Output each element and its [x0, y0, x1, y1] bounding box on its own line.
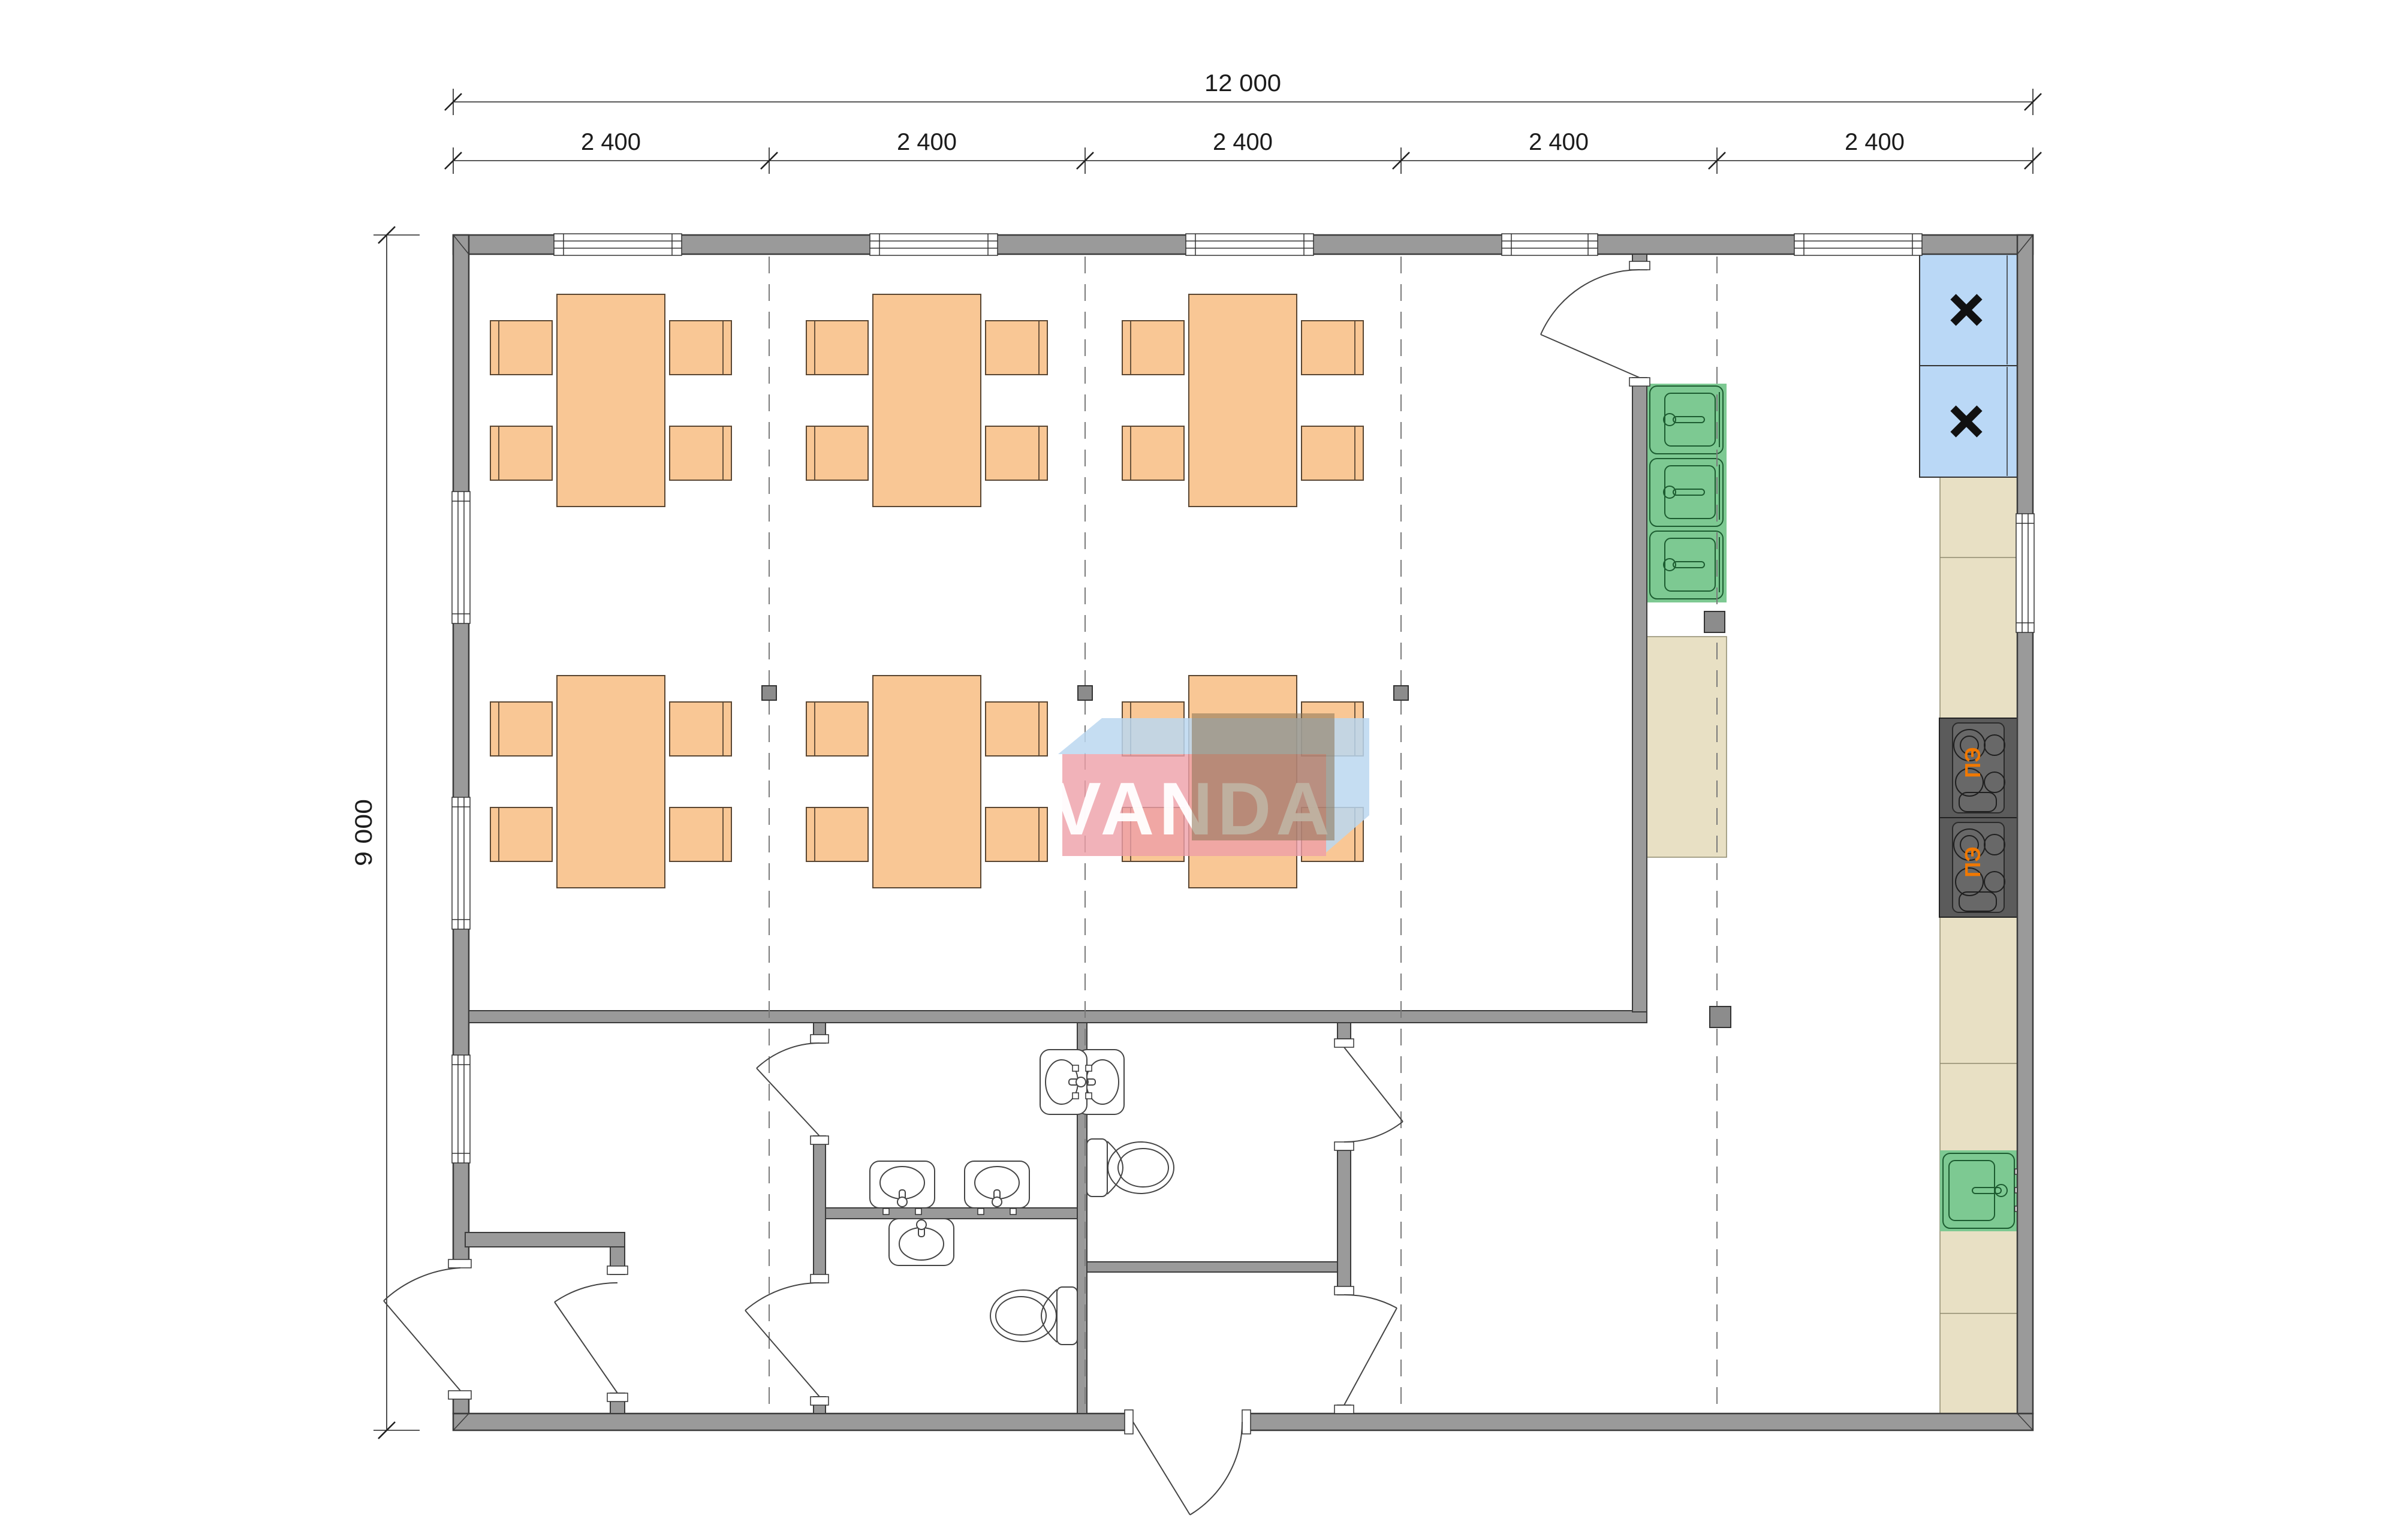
dimension-bay-5-label: 2 400	[1845, 129, 1905, 155]
wall-backroom-left	[1337, 1150, 1351, 1295]
dimension-bay-3-label: 2 400	[1213, 129, 1273, 155]
dimension-total-width-label: 12 000	[1204, 70, 1281, 97]
window-left-3	[452, 1055, 470, 1163]
stove-2-label: ПЭ	[1960, 846, 1985, 878]
window-right-1	[2016, 514, 2034, 632]
window-top-2	[870, 234, 998, 255]
kitchen-counters	[1647, 477, 2017, 1414]
watermark-shadow-box	[1192, 713, 1334, 840]
door-corridor-upper	[757, 1035, 829, 1144]
column-4	[1710, 1006, 1731, 1027]
kitchen-sink-block	[1640, 384, 1727, 602]
stoves: ПЭ ПЭ	[1939, 718, 2017, 917]
toilet-1	[1087, 1139, 1174, 1197]
dimension-total-height-label: 9 000	[351, 799, 377, 866]
door-toilet-room	[1334, 1039, 1403, 1150]
refrigerators	[1920, 254, 2019, 477]
dimension-bay-1-label: 2 400	[581, 129, 641, 155]
wall-wc-left	[814, 1136, 826, 1283]
column-1	[762, 686, 776, 700]
wall-hall-divider	[469, 1011, 1647, 1023]
wall-washroom-bottom	[826, 1208, 1077, 1219]
wall-backroom-left-stub	[1337, 1023, 1351, 1039]
window-left-2	[452, 797, 470, 929]
dining-set-4	[490, 676, 731, 888]
wall-vestibule-top	[465, 1232, 625, 1247]
stove-1-label: ПЭ	[1960, 747, 1985, 778]
wall-kitchen-partition	[1632, 378, 1647, 1012]
door-kitchen	[1541, 261, 1650, 386]
door-entrance-hall	[1334, 1286, 1397, 1414]
sanitary-fixtures	[870, 1050, 1174, 1345]
floor-plan-drawing: 12 000 2 400 2 400 2 400 2 400 2 400	[0, 0, 2398, 1540]
wash-basin-2	[965, 1161, 1029, 1208]
dining-set-1	[490, 294, 731, 507]
window-left-1	[452, 492, 470, 623]
door-corridor-lower	[745, 1274, 829, 1405]
dimension-left-total: 9 000	[351, 227, 420, 1439]
door-vestibule	[555, 1266, 628, 1402]
column-3	[1394, 686, 1408, 700]
service-sink	[1940, 1150, 2020, 1231]
wash-basin-3	[889, 1219, 954, 1265]
dimension-top-total: 12 000	[445, 70, 2041, 115]
dining-set-2	[806, 294, 1047, 507]
kitchen-counter-right-upper	[1940, 477, 2017, 718]
dining-set-5	[806, 676, 1047, 888]
dining-set-3	[1122, 294, 1363, 507]
column-2	[1078, 686, 1092, 700]
wall-toilet-room-bottom	[1087, 1262, 1337, 1272]
window-top-1	[554, 234, 682, 255]
column-5	[1704, 611, 1725, 632]
dimension-bay-4-label: 2 400	[1529, 129, 1589, 155]
window-top-5	[1794, 234, 1922, 255]
floor-plan-canvas: 12 000 2 400 2 400 2 400 2 400 2 400	[0, 0, 2398, 1540]
toilet-2	[990, 1287, 1077, 1345]
dimension-bay-2-label: 2 400	[897, 129, 957, 155]
dimension-top-segments: 2 400 2 400 2 400 2 400 2 400	[445, 129, 2041, 174]
wash-basin-5	[1040, 1050, 1087, 1114]
refrigerator-2	[1920, 366, 2019, 477]
door-exterior-left	[384, 1259, 471, 1399]
wash-basin-1	[870, 1161, 935, 1208]
wall-right	[2017, 235, 2033, 1414]
window-top-4	[1502, 234, 1598, 255]
refrigerator-1	[1920, 254, 2019, 366]
vanda-watermark: VANDA	[1052, 713, 1369, 856]
kitchen-counter-center	[1647, 637, 1727, 857]
window-top-3	[1186, 234, 1314, 255]
door-main-entrance	[1125, 1410, 1251, 1515]
